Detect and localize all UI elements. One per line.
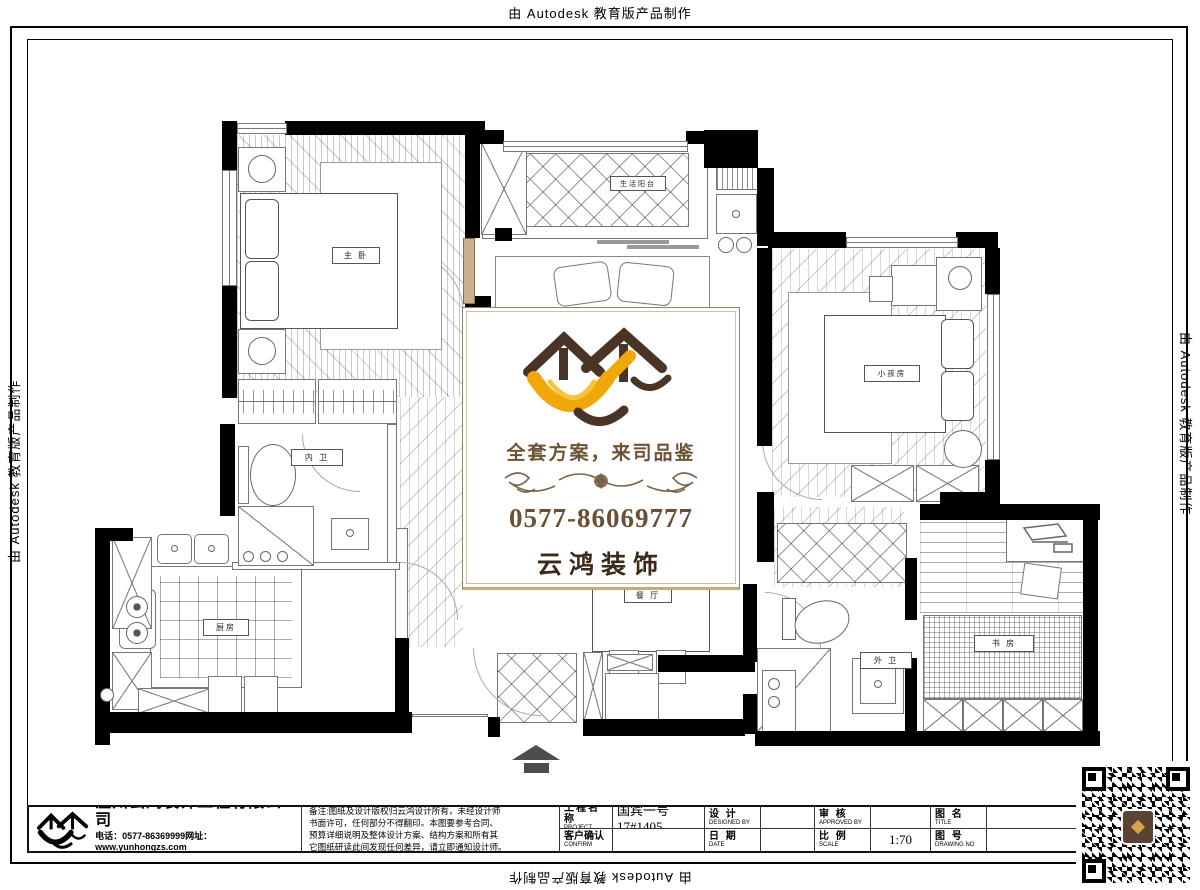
knob — [243, 551, 254, 562]
design-label: 设 计DESIGNED BY — [704, 807, 760, 829]
wall — [956, 232, 998, 248]
wall — [465, 134, 480, 238]
wall — [985, 248, 1000, 294]
notes-line: 预算详细说明及整体设计方案、结构方案和所有其 — [309, 829, 552, 841]
wall — [658, 655, 755, 672]
knob — [768, 696, 780, 708]
wall — [220, 424, 235, 516]
window-kids-right — [987, 294, 1000, 460]
confirm-value — [612, 829, 704, 851]
label-bath-inner: 内 卫 — [291, 449, 343, 466]
company-logo-small-icon — [33, 808, 89, 850]
sofa-pillow — [616, 261, 675, 307]
wall — [495, 228, 512, 241]
approve-value — [870, 807, 930, 829]
label-balcony: 生活阳台 — [610, 176, 666, 191]
lamp — [944, 430, 982, 468]
wall — [755, 731, 1100, 746]
entry-arrow-base — [524, 763, 549, 773]
wall — [905, 658, 917, 734]
drain — [874, 680, 882, 688]
autodesk-text-right: 由 Autodesk 教育版产品制作 — [1177, 332, 1196, 515]
wardrobe-kids — [851, 465, 914, 502]
scale-label: 比 例SCALE — [814, 829, 870, 851]
company-name: 温州云鸿装饰工程有限公司 — [95, 807, 297, 831]
wall — [583, 719, 745, 736]
label-kids-room: 小孩房 — [864, 365, 920, 382]
pillow — [941, 319, 974, 369]
wall — [704, 130, 758, 168]
partition — [387, 424, 397, 569]
notes-cell: 备注:图纸及设计版权归云鸿设计所有，未经设计师 书面许可，任何部分不得翻印。本图… — [301, 807, 559, 851]
cabinet — [607, 654, 653, 671]
label-kitchen: 厨房 — [203, 619, 249, 636]
wall — [222, 121, 237, 170]
watermark-phone: 0577-86069777 — [463, 503, 739, 534]
drawing-name-label: 图 名TITLE — [930, 807, 986, 829]
bookcase — [1003, 699, 1043, 732]
date-label: 日 期DATE — [704, 829, 760, 851]
watermark-card: 全套方案，来司品鉴 0577-86069777 云鸿装饰 — [462, 307, 740, 590]
wall — [768, 232, 846, 248]
bookcase — [963, 699, 1003, 732]
wall — [95, 712, 412, 733]
company-phone: 电话：0577-86369999网址：www.yunhongzs.com — [95, 831, 297, 851]
watermark-tagline: 全套方案，来司品鉴 — [463, 438, 739, 465]
label-bath-outer: 外 卫 — [860, 652, 912, 669]
study-desk — [1006, 517, 1084, 562]
qr-finder — [1166, 767, 1190, 791]
qr-finder — [1082, 767, 1106, 791]
meter — [100, 688, 114, 702]
notes-line: 它图纸研读此间发现任何差异，请立即通知设计师。 — [309, 841, 552, 851]
burner — [126, 622, 148, 644]
wall — [285, 121, 485, 135]
wall — [940, 492, 998, 506]
wall — [480, 130, 504, 144]
date-value — [760, 829, 814, 851]
window-master-left — [222, 170, 237, 286]
bookcase — [923, 699, 963, 732]
knob — [260, 551, 271, 562]
laptop-icon — [1010, 520, 1080, 558]
ornament-divider — [501, 468, 701, 496]
door-leaf — [463, 238, 475, 304]
wall — [395, 638, 409, 714]
burner — [126, 596, 148, 618]
company-logo-icon — [514, 320, 689, 432]
lamp — [248, 155, 276, 183]
project-value: 国宾一号17#1405 — [612, 807, 704, 829]
shoe-cabinet — [605, 673, 659, 721]
project-label: 工程名称PROJECT — [559, 807, 612, 829]
door-arc-entry — [473, 648, 541, 716]
qr-center-logo — [1121, 809, 1155, 845]
wall — [95, 528, 133, 541]
floor-study-parquet — [923, 615, 1082, 699]
title-block: 温州云鸿装饰工程有限公司 电话：0577-86369999网址：www.yunh… — [27, 805, 1173, 853]
wall — [757, 248, 772, 446]
shaft — [481, 143, 527, 235]
knob — [718, 237, 734, 253]
pillow — [245, 199, 279, 259]
approve-label: 审 核APPROVED BY — [814, 807, 870, 829]
wardrobe-master — [238, 379, 316, 424]
lamp — [248, 337, 276, 365]
hallway-rug — [777, 523, 907, 583]
notes-line: 书面许可，任何部分不得翻印。本图要参考合同、 — [309, 817, 552, 829]
sliding-door — [627, 245, 699, 249]
threshold — [412, 714, 488, 717]
label-master-bedroom: 主 卧 — [332, 247, 380, 264]
toilet-bowl — [250, 444, 296, 506]
window-balcony — [503, 141, 688, 152]
entry-arrow — [512, 745, 560, 760]
wall — [1083, 520, 1098, 746]
window-master-top — [237, 123, 287, 134]
company-cell: 温州云鸿装饰工程有限公司 电话：0577-86369999网址：www.yunh… — [29, 807, 301, 851]
knob — [768, 678, 780, 690]
wall — [743, 694, 757, 734]
cabinet — [583, 652, 603, 722]
confirm-label: 客户确认CONFIRM — [559, 829, 612, 851]
toilet-tank — [238, 446, 249, 504]
bookcase — [1043, 699, 1083, 732]
design-value — [760, 807, 814, 829]
autodesk-text-top: 由 Autodesk 教育版产品制作 — [0, 3, 1200, 22]
drain — [208, 545, 215, 552]
wall — [920, 504, 1100, 520]
drawing-no-label: 图 号DRAWING NO — [930, 829, 986, 851]
kids-chair — [869, 276, 893, 302]
knob — [736, 237, 752, 253]
notes-line: 备注:图纸及设计版权归云鸿设计所有，未经设计师 — [309, 807, 552, 817]
wall — [222, 286, 237, 398]
basin-drain — [346, 529, 354, 537]
wall — [905, 558, 917, 620]
sliding-door — [597, 240, 669, 244]
wardrobe-master — [318, 379, 397, 424]
counter — [138, 688, 210, 714]
scale-value: 1:70 — [870, 829, 930, 851]
drain — [171, 545, 178, 552]
study-chair — [1020, 563, 1062, 600]
window-kids-top — [846, 237, 958, 248]
wall — [488, 717, 500, 737]
autodesk-text-bottom: 由 Autodesk 教育版产品制作 — [0, 869, 1200, 888]
autodesk-text-left: 由 Autodesk 教育版产品制作 — [4, 380, 23, 563]
label-study: 书 房 — [974, 635, 1034, 652]
watermark-brand: 云鸿装饰 — [463, 545, 739, 581]
pillow — [245, 261, 279, 321]
wall — [743, 584, 757, 662]
pillow — [941, 371, 974, 421]
knob — [277, 551, 288, 562]
lamp — [948, 266, 972, 290]
sofa-pillow — [552, 260, 612, 307]
wall — [757, 492, 774, 562]
drain — [732, 210, 740, 218]
toilet-tank — [782, 598, 796, 640]
